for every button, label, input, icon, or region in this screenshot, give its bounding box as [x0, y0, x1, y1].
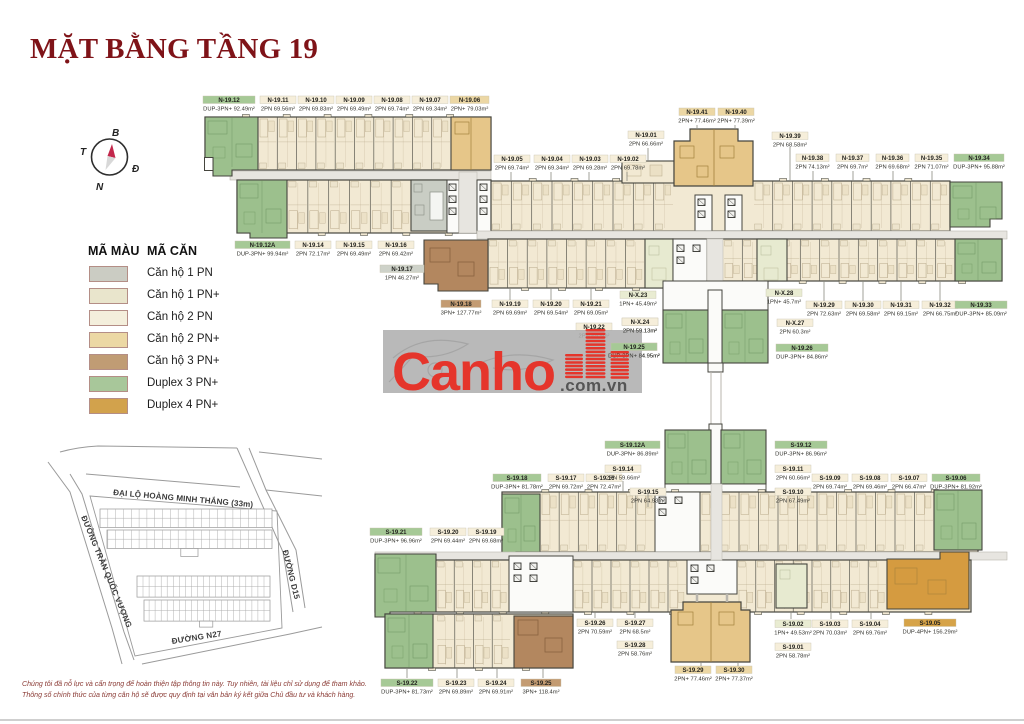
svg-text:N-19.02: N-19.02	[617, 157, 639, 163]
svg-text:S-19.20: S-19.20	[437, 530, 459, 536]
svg-text:N-19.15: N-19.15	[343, 243, 365, 249]
svg-text:S-19.19: S-19.19	[475, 530, 497, 536]
svg-text:2PN 69.56m²: 2PN 69.56m²	[261, 106, 295, 112]
svg-text:2PN 69.72m²: 2PN 69.72m²	[549, 484, 583, 490]
svg-text:N-X.24: N-X.24	[631, 320, 650, 326]
svg-text:2PN 69.44m²: 2PN 69.44m²	[431, 538, 465, 544]
svg-text:S-19.18: S-19.18	[506, 476, 528, 482]
svg-text:2PN 70.59m²: 2PN 70.59m²	[578, 629, 612, 635]
svg-text:2PN 72.63m²: 2PN 72.63m²	[807, 311, 841, 317]
svg-text:2PN 69.74m²: 2PN 69.74m²	[813, 484, 847, 490]
svg-text:S-19.29: S-19.29	[682, 668, 704, 674]
svg-text:S-19.14: S-19.14	[612, 467, 634, 473]
svg-text:N-19.37: N-19.37	[842, 156, 864, 162]
svg-text:2PN 69.34m²: 2PN 69.34m²	[413, 106, 447, 112]
svg-text:N-19.35: N-19.35	[921, 156, 943, 162]
svg-text:1PN 46.27m²: 1PN 46.27m²	[385, 275, 419, 281]
svg-text:DUP-3PN+ 96.96m²: DUP-3PN+ 96.96m²	[370, 538, 422, 544]
svg-text:2PN 69.46m²: 2PN 69.46m²	[853, 484, 887, 490]
svg-text:S-19.27: S-19.27	[624, 621, 646, 627]
svg-text:DUP-3PN+ 81.73m²: DUP-3PN+ 81.73m²	[381, 689, 433, 695]
svg-text:S-19.12: S-19.12	[790, 443, 812, 449]
svg-text:S-19.12A: S-19.12A	[620, 443, 646, 449]
svg-text:N-19.05: N-19.05	[501, 157, 523, 163]
svg-text:1PN+ 45.7m²: 1PN+ 45.7m²	[767, 299, 801, 305]
svg-text:N-19.38: N-19.38	[802, 156, 824, 162]
svg-text:N-19.01: N-19.01	[635, 133, 657, 139]
svg-text:N-X.23: N-X.23	[629, 293, 648, 299]
svg-text:N-19.04: N-19.04	[541, 157, 563, 163]
svg-text:2PN 72.47m²: 2PN 72.47m²	[587, 484, 621, 490]
svg-text:2PN 69.76m²: 2PN 69.76m²	[853, 630, 887, 636]
svg-text:N-19.11: N-19.11	[267, 98, 289, 104]
svg-text:DUP-3PN+ 95.88m²: DUP-3PN+ 95.88m²	[953, 164, 1005, 170]
svg-text:DUP-4PN+ 156.29m²: DUP-4PN+ 156.29m²	[903, 629, 958, 635]
svg-text:S-19.06: S-19.06	[945, 476, 967, 482]
svg-text:2PN 69.74m²: 2PN 69.74m²	[375, 106, 409, 112]
svg-text:N-19.29: N-19.29	[813, 303, 835, 309]
svg-text:2PN 58.78m²: 2PN 58.78m²	[776, 653, 810, 659]
svg-text:S-19.10: S-19.10	[782, 490, 804, 496]
svg-text:2PN 67.49m²: 2PN 67.49m²	[776, 498, 810, 504]
svg-text:2PN 70.03m²: 2PN 70.03m²	[813, 630, 847, 636]
svg-text:N-19.36: N-19.36	[882, 156, 904, 162]
svg-text:2PN 69.42m²: 2PN 69.42m²	[379, 251, 413, 257]
svg-text:2PN 66.66m²: 2PN 66.66m²	[629, 141, 663, 147]
svg-text:N-19.03: N-19.03	[579, 157, 601, 163]
svg-text:S-19.04: S-19.04	[859, 622, 881, 628]
svg-text:DUP-3PN+ 86.89m²: DUP-3PN+ 86.89m²	[607, 451, 659, 457]
svg-text:2PN 60.66m²: 2PN 60.66m²	[776, 475, 810, 481]
svg-text:2PN 69.34m²: 2PN 69.34m²	[535, 165, 569, 171]
svg-text:N-19.07: N-19.07	[419, 98, 441, 104]
svg-text:N-19.08: N-19.08	[381, 98, 403, 104]
svg-text:N-19.31: N-19.31	[890, 303, 912, 309]
svg-text:N-19.33: N-19.33	[970, 303, 992, 309]
svg-text:2PN 69.49m²: 2PN 69.49m²	[337, 106, 371, 112]
svg-text:DUP-3PN+ 81.92m²: DUP-3PN+ 81.92m²	[930, 484, 982, 490]
svg-text:ĐƯỜNG D15: ĐƯỜNG D15	[281, 549, 302, 600]
svg-text:2PN 69.49m²: 2PN 69.49m²	[337, 251, 371, 257]
svg-text:N-19.06: N-19.06	[459, 98, 481, 104]
svg-text:N-19.14: N-19.14	[302, 243, 324, 249]
svg-text:2PN 66.47m²: 2PN 66.47m²	[892, 484, 926, 490]
svg-text:S-19.23: S-19.23	[445, 681, 467, 687]
svg-text:N-19.16: N-19.16	[385, 243, 407, 249]
svg-text:2PN 69.74m²: 2PN 69.74m²	[495, 165, 529, 171]
svg-text:2PN 69.15m²: 2PN 69.15m²	[884, 311, 918, 317]
svg-text:N-19.40: N-19.40	[725, 110, 747, 116]
svg-text:N-19.41: N-19.41	[686, 110, 708, 116]
svg-text:2PN+ 77.39m²: 2PN+ 77.39m²	[717, 118, 755, 124]
svg-text:DUP-3PN+ 81.78m²: DUP-3PN+ 81.78m²	[491, 484, 543, 490]
svg-text:S-19.28: S-19.28	[624, 643, 646, 649]
svg-text:2PN 69.91m²: 2PN 69.91m²	[479, 689, 513, 695]
svg-text:2PN+ 77.46m²: 2PN+ 77.46m²	[678, 118, 716, 124]
svg-text:DUP-3PN+ 99.94m²: DUP-3PN+ 99.94m²	[237, 251, 289, 257]
svg-text:2PN 72.17m²: 2PN 72.17m²	[296, 251, 330, 257]
svg-text:N-19.26: N-19.26	[791, 346, 813, 352]
svg-text:2PN+ 79.03m²: 2PN+ 79.03m²	[451, 106, 489, 112]
svg-text:S-19.05: S-19.05	[919, 621, 941, 627]
svg-text:S-19.24: S-19.24	[485, 681, 507, 687]
svg-text:2PN 69.7m²: 2PN 69.7m²	[837, 164, 868, 170]
svg-text:N-X.27: N-X.27	[786, 321, 805, 327]
svg-text:DUP-3PN+ 92.49m²: DUP-3PN+ 92.49m²	[203, 106, 255, 112]
svg-text:S-19.09: S-19.09	[819, 476, 841, 482]
svg-text:2PN 69.78m²: 2PN 69.78m²	[611, 165, 645, 171]
svg-text:1PN+ 49.53m²: 1PN+ 49.53m²	[774, 630, 812, 636]
svg-text:3PN+ 118.4m²: 3PN+ 118.4m²	[522, 689, 559, 695]
svg-text:ĐƯỜNG N27: ĐƯỜNG N27	[171, 629, 223, 646]
svg-text:3PN+ 127.77m²: 3PN+ 127.77m²	[441, 310, 482, 316]
svg-text:2PN 58.76m²: 2PN 58.76m²	[618, 651, 652, 657]
svg-text:2PN 68.5m²: 2PN 68.5m²	[620, 629, 651, 635]
svg-text:S-19.08: S-19.08	[859, 476, 881, 482]
svg-text:2PN 74.13m²: 2PN 74.13m²	[795, 164, 829, 170]
svg-text:2PN 69.28m²: 2PN 69.28m²	[573, 165, 607, 171]
svg-text:S-19.17: S-19.17	[555, 476, 577, 482]
svg-text:N-19.39: N-19.39	[779, 134, 801, 140]
svg-text:2PN 69.68m²: 2PN 69.68m²	[875, 164, 909, 170]
svg-text:S-19.21: S-19.21	[385, 530, 407, 536]
svg-text:S-19.07: S-19.07	[898, 476, 920, 482]
svg-text:N-19.30: N-19.30	[852, 303, 874, 309]
svg-text:2PN 66.75m²: 2PN 66.75m²	[923, 311, 957, 317]
svg-text:N-X.28: N-X.28	[775, 291, 794, 297]
svg-text:S-19.01: S-19.01	[782, 645, 804, 651]
svg-text:2PN 71.07m²: 2PN 71.07m²	[914, 164, 948, 170]
svg-text:2PN+ 77.46m²: 2PN+ 77.46m²	[674, 676, 712, 682]
svg-text:N-19.34: N-19.34	[968, 156, 990, 162]
svg-text:N-19.17: N-19.17	[391, 267, 413, 273]
svg-text:2PN 69.68m²: 2PN 69.68m²	[469, 538, 503, 544]
svg-text:2PN 69.89m²: 2PN 69.89m²	[439, 689, 473, 695]
svg-text:N-19.18: N-19.18	[450, 302, 472, 308]
svg-text:N-19.12: N-19.12	[218, 98, 240, 104]
svg-text:N-19.12A: N-19.12A	[250, 243, 276, 249]
svg-text:2PN 60.3m²: 2PN 60.3m²	[780, 329, 811, 335]
svg-text:2PN 69.69m²: 2PN 69.69m²	[493, 310, 527, 316]
svg-text:2PN 59.66m²: 2PN 59.66m²	[606, 475, 640, 481]
svg-text:N-19.09: N-19.09	[343, 98, 365, 104]
svg-text:N-19.32: N-19.32	[929, 303, 951, 309]
svg-text:DUP-3PN+ 85.09m²: DUP-3PN+ 85.09m²	[955, 311, 1007, 317]
svg-text:2PN 69.58m²: 2PN 69.58m²	[846, 311, 880, 317]
svg-text:S-19.11: S-19.11	[783, 467, 804, 473]
svg-text:DUP-3PN+ 86.96m²: DUP-3PN+ 86.96m²	[775, 451, 827, 457]
svg-text:N-19.19: N-19.19	[499, 302, 521, 308]
svg-text:S-19.30: S-19.30	[723, 668, 745, 674]
svg-text:ĐẠI LỘ HOÀNG MINH THẮNG (33m): ĐẠI LỘ HOÀNG MINH THẮNG (33m)	[113, 488, 254, 509]
svg-text:S-19.22: S-19.22	[396, 681, 418, 687]
svg-text:N-19.10: N-19.10	[305, 98, 327, 104]
svg-text:S-19.25: S-19.25	[530, 681, 552, 687]
svg-text:S-19.03: S-19.03	[819, 622, 841, 628]
svg-text:2PN+ 77.37m²: 2PN+ 77.37m²	[715, 676, 753, 682]
svg-text:S-19.02: S-19.02	[782, 622, 804, 628]
svg-text:DUP-3PN+ 84.86m²: DUP-3PN+ 84.86m²	[776, 354, 828, 360]
svg-text:2PN 69.83m²: 2PN 69.83m²	[299, 106, 333, 112]
svg-text:S-19.26: S-19.26	[584, 621, 606, 627]
